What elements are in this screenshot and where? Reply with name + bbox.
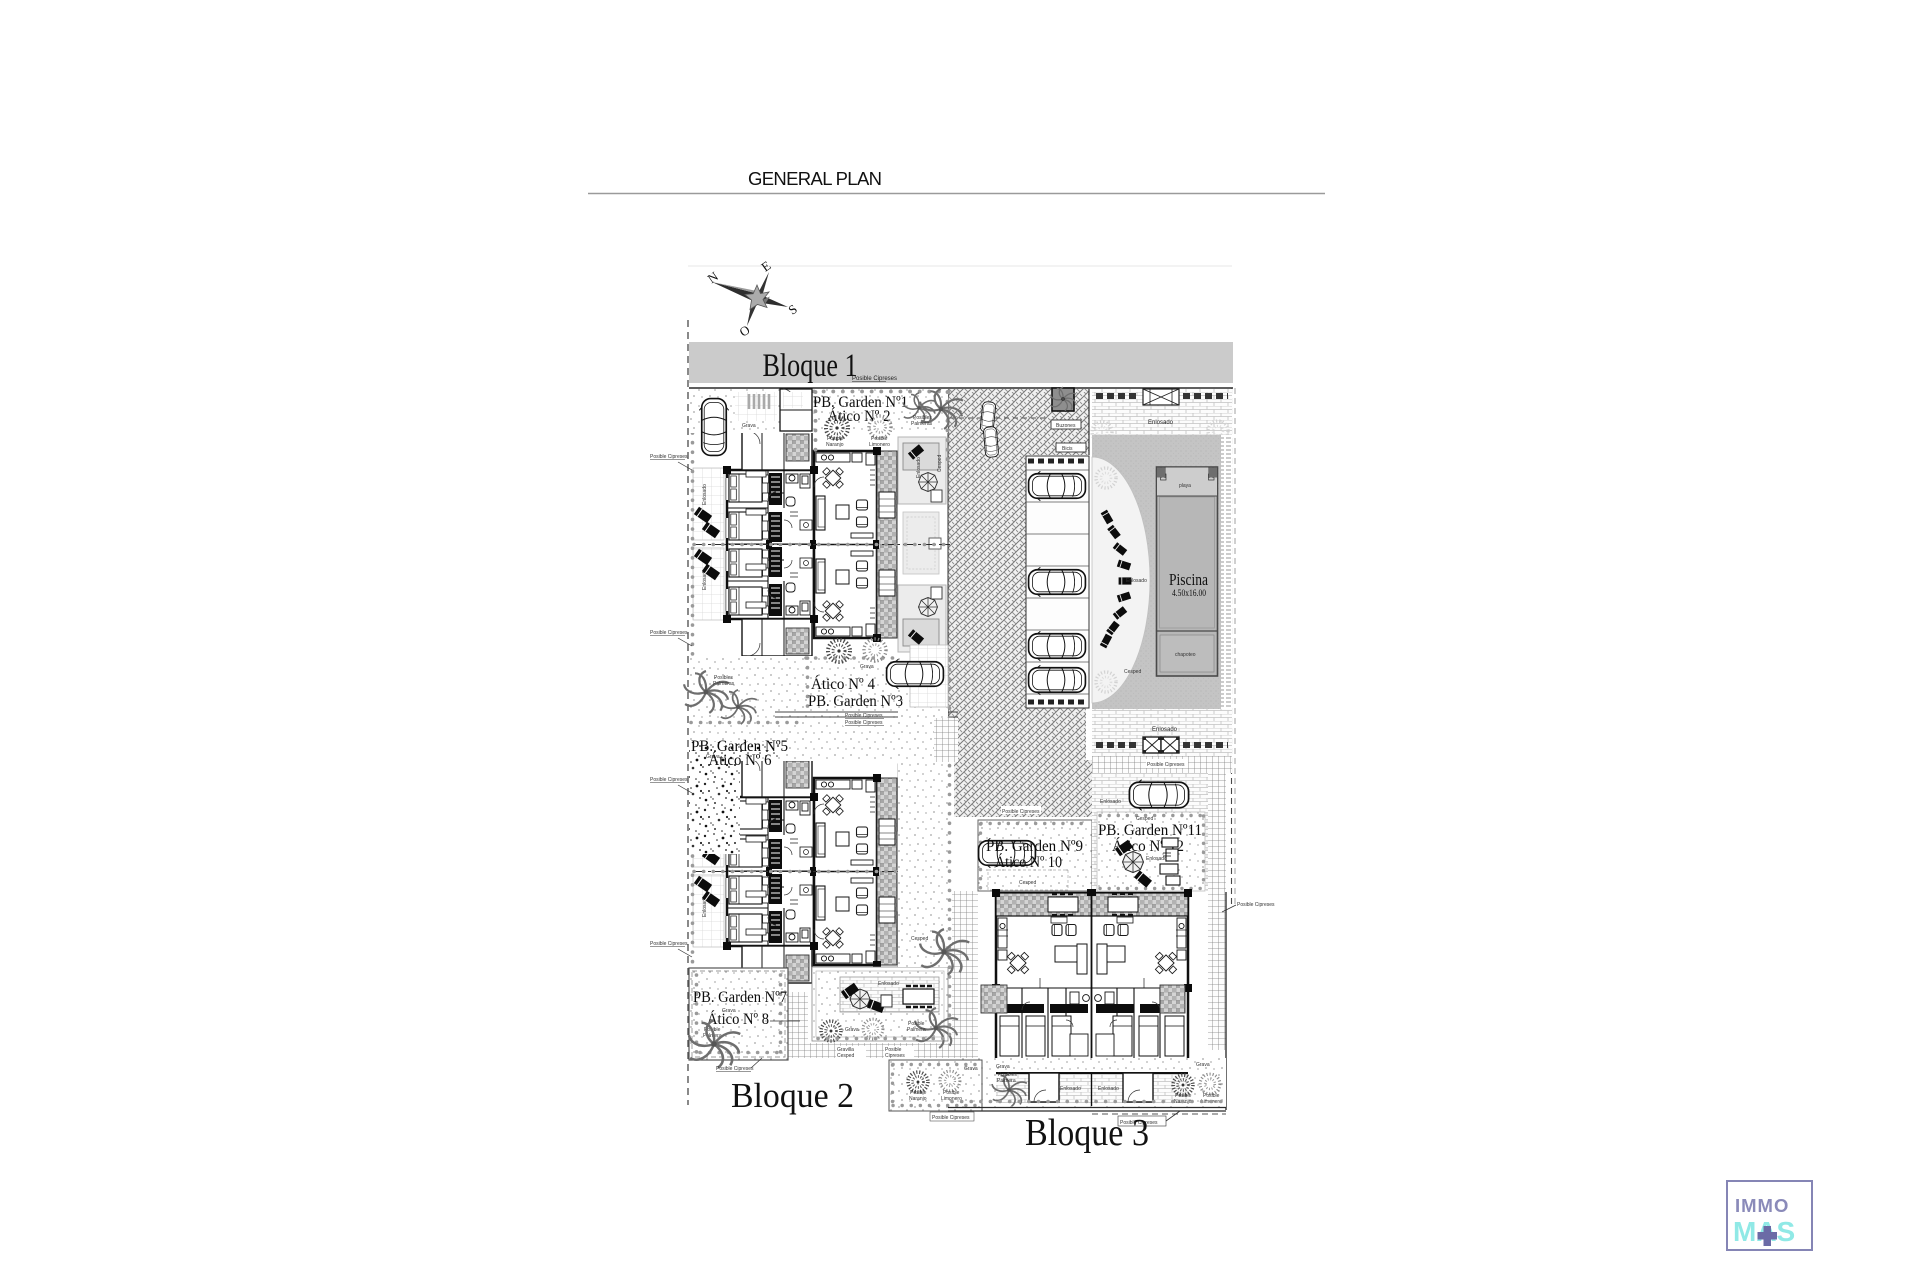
svg-text:PB. Garden Nº9: PB. Garden Nº9: [986, 838, 1083, 855]
svg-text:Enlosado: Enlosado: [1152, 727, 1178, 733]
svg-text:Ático Nº 4: Ático Nº 4: [811, 674, 875, 693]
svg-text:chapoteo: chapoteo: [1175, 652, 1196, 658]
svg-text:Ático Nº 8: Ático Nº 8: [707, 1009, 769, 1028]
svg-text:Posible Cipreses: Posible Cipreses: [845, 713, 883, 719]
svg-text:Grava: Grava: [964, 1066, 978, 1072]
svg-text:Posible Cipreses: Posible Cipreses: [650, 777, 688, 783]
svg-text:Posible Cipreses: Posible Cipreses: [852, 376, 897, 382]
svg-text:Posible Cipreses: Posible Cipreses: [1147, 762, 1185, 768]
svg-text:Posible Cipreses: Posible Cipreses: [716, 1066, 754, 1072]
svg-text:Enlosado: Enlosado: [1126, 578, 1147, 584]
svg-text:Cesped: Cesped: [911, 936, 928, 942]
svg-text:Enlosado: Enlosado: [1148, 420, 1174, 426]
svg-text:Naranjo: Naranjo: [909, 1096, 927, 1102]
svg-text:Enlosado: Enlosado: [1100, 799, 1121, 805]
svg-text:Palmera: Palmera: [907, 1027, 926, 1033]
svg-text:Posible Cipreses: Posible Cipreses: [1237, 902, 1275, 908]
svg-text:Cipreses: Cipreses: [885, 1053, 905, 1059]
svg-text:Enlosado: Enlosado: [1098, 1086, 1119, 1092]
svg-text:Posible Cipreses: Posible Cipreses: [845, 720, 883, 726]
svg-text:Bicis: Bicis: [1062, 446, 1073, 452]
svg-text:Grava: Grava: [742, 423, 756, 429]
svg-text:4.50x16.00: 4.50x16.00: [1172, 589, 1206, 599]
svg-text:Cesped: Cesped: [837, 1053, 854, 1059]
svg-text:Buzones: Buzones: [1056, 423, 1076, 429]
svg-text:Posible Cipreses: Posible Cipreses: [650, 454, 688, 460]
svg-text:Bloque 3: Bloque 3: [1025, 1112, 1149, 1154]
svg-text:Limonero: Limonero: [869, 442, 890, 448]
svg-text:Enlosado: Enlosado: [702, 484, 708, 505]
svg-text:Grava: Grava: [996, 1064, 1010, 1070]
svg-text:Bloque 1: Bloque 1: [763, 348, 858, 384]
svg-text:Palmeras: Palmeras: [911, 421, 933, 427]
svg-text:Enlosado: Enlosado: [878, 981, 899, 987]
svg-text:Ático Nº 10: Ático Nº 10: [995, 852, 1062, 871]
svg-text:playa: playa: [1179, 483, 1191, 489]
svg-text:Enlosado: Enlosado: [1060, 1086, 1081, 1092]
svg-text:PB. Garden Nº3: PB. Garden Nº3: [808, 693, 903, 710]
svg-text:Enlosado: Enlosado: [1146, 856, 1167, 862]
svg-text:Enlosado: Enlosado: [916, 457, 922, 478]
svg-text:Palmeras: Palmeras: [713, 681, 735, 687]
svg-text:Cesped: Cesped: [1124, 669, 1141, 675]
svg-text:Naranjo: Naranjo: [826, 442, 844, 448]
svg-text:Cesped: Cesped: [937, 455, 943, 472]
svg-text:Posible Cipreses: Posible Cipreses: [650, 941, 688, 947]
svg-text:Cesped: Cesped: [1019, 880, 1036, 886]
svg-text:Piscina: Piscina: [1169, 570, 1208, 589]
svg-text:Bloque 2: Bloque 2: [731, 1076, 854, 1115]
svg-text:IMMO: IMMO: [1735, 1195, 1789, 1216]
svg-text:Posible Cipreses: Posible Cipreses: [1002, 809, 1040, 815]
svg-text:Posible Cipreses: Posible Cipreses: [932, 1115, 970, 1121]
svg-text:Grava: Grava: [706, 754, 720, 760]
svg-text:PB. Garden Nº11: PB. Garden Nº11: [1098, 822, 1202, 839]
svg-text:Grava: Grava: [1196, 1062, 1210, 1068]
svg-text:Grava: Grava: [845, 1027, 859, 1033]
svg-text:Palmera: Palmera: [997, 1078, 1016, 1084]
svg-text:PB. Garden Nº7: PB. Garden Nº7: [693, 989, 787, 1006]
svg-text:Grava: Grava: [860, 664, 874, 670]
svg-text:GENERAL PLAN: GENERAL PLAN: [748, 168, 883, 189]
svg-text:Posible Cipreses: Posible Cipreses: [650, 630, 688, 636]
